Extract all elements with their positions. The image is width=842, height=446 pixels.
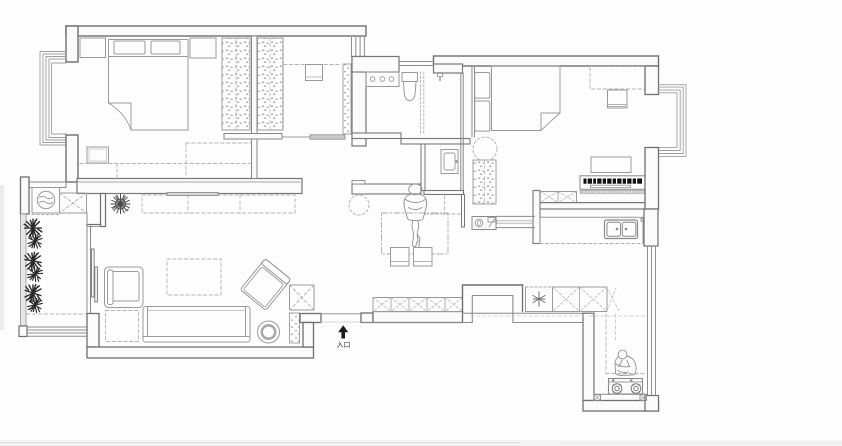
svg-text:入口: 入口 <box>337 341 351 349</box>
